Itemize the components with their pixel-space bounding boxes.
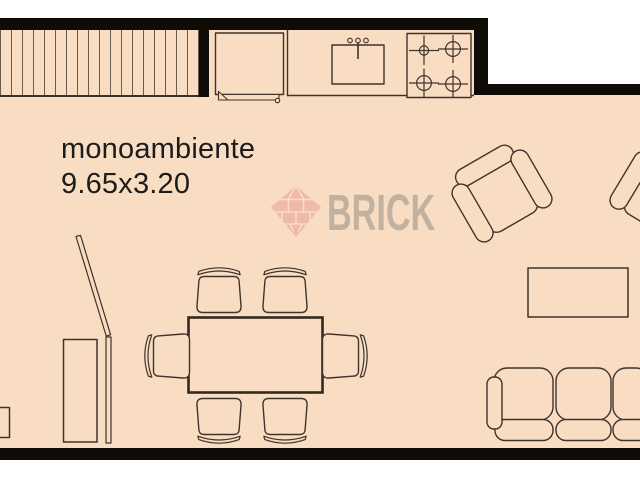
room-label: monoambiente 9.65x3.20 <box>61 132 255 202</box>
closet-hatch <box>0 30 199 97</box>
room-dimensions: 9.65x3.20 <box>61 167 255 202</box>
wall-kitchen-divider <box>199 18 209 97</box>
watermark-brand-text: BRICK <box>327 187 435 238</box>
wall-bottom <box>0 448 640 460</box>
floor-plan: monoambiente 9.65x3.20 BRICK <box>0 0 640 480</box>
wall-top <box>0 18 488 30</box>
wall-step-horizontal <box>474 84 640 95</box>
room-name: monoambiente <box>61 132 255 167</box>
exterior-notch <box>487 0 640 84</box>
